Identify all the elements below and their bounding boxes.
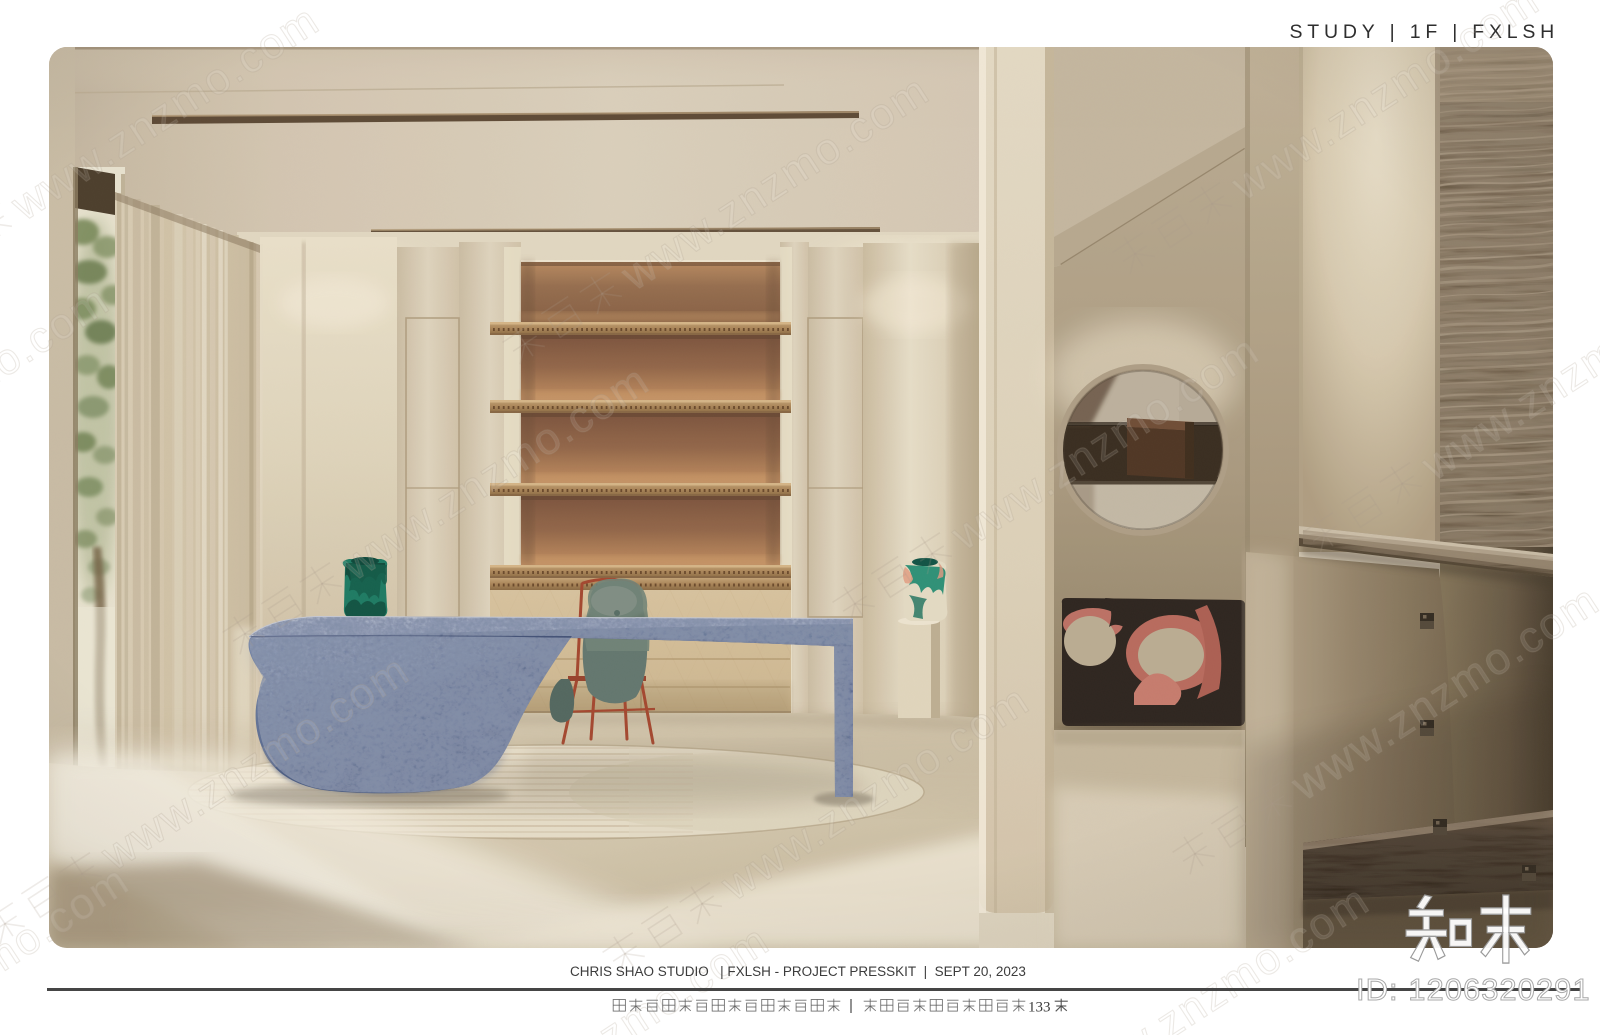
svg-text:133: 133 <box>1028 1000 1051 1016</box>
